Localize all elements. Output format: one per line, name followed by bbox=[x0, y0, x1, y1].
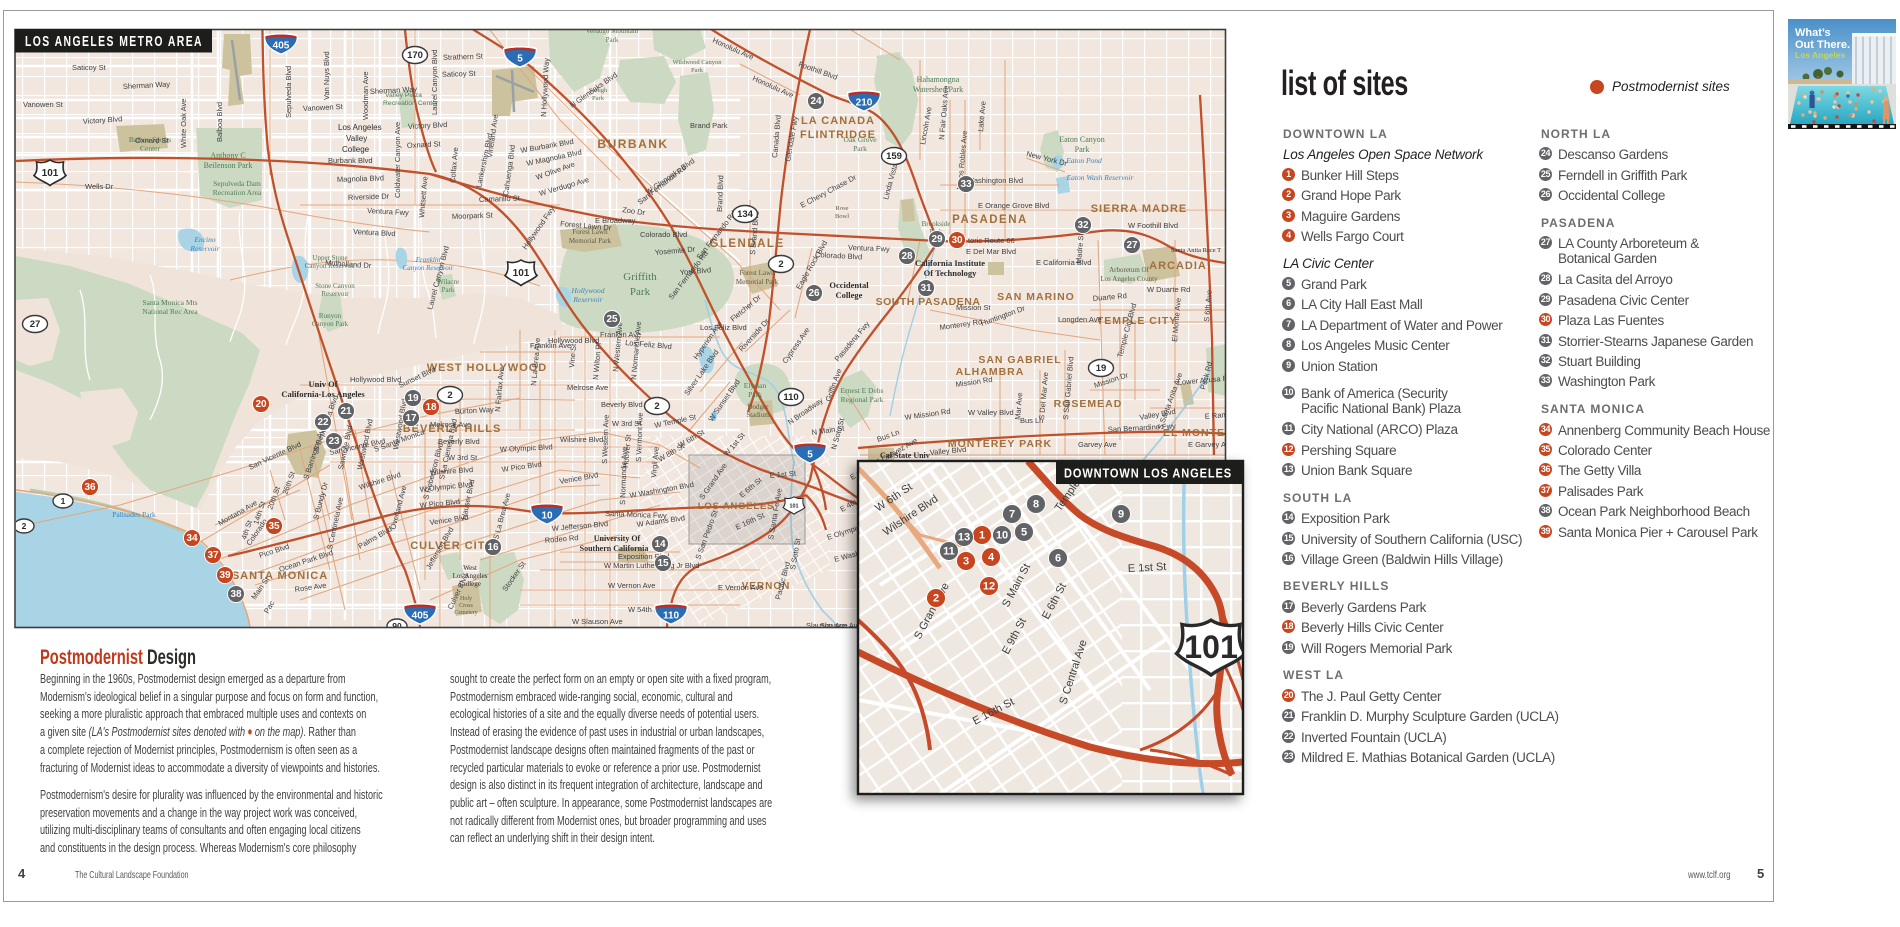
svg-text:Santa Monica Mts: Santa Monica Mts bbox=[143, 298, 198, 307]
svg-text:16: 16 bbox=[487, 542, 499, 553]
svg-text:Los Angeles: Los Angeles bbox=[1795, 50, 1845, 60]
svg-text:Coldwater Canyon Ave: Coldwater Canyon Ave bbox=[393, 122, 402, 198]
svg-text:101: 101 bbox=[1184, 629, 1238, 665]
svg-text:10: 10 bbox=[996, 529, 1008, 541]
svg-text:Wilshire Blvd: Wilshire Blvd bbox=[560, 435, 603, 444]
svg-text:28: 28 bbox=[901, 251, 913, 262]
svg-text:W Slauson Ave: W Slauson Ave bbox=[572, 617, 623, 626]
svg-text:29: 29 bbox=[931, 234, 943, 245]
svg-text:Valley Plaza: Valley Plaza bbox=[385, 92, 422, 99]
svg-text:LOS ANGELES METRO AREA: LOS ANGELES METRO AREA bbox=[25, 34, 203, 50]
svg-text:Sepulveda Blvd: Sepulveda Blvd bbox=[284, 66, 293, 118]
svg-text:Bowl: Bowl bbox=[835, 213, 849, 220]
svg-text:35: 35 bbox=[268, 521, 280, 532]
svg-text:2: 2 bbox=[447, 390, 452, 401]
svg-text:101: 101 bbox=[789, 503, 798, 509]
svg-text:Oxnard St: Oxnard St bbox=[407, 139, 442, 150]
svg-text:Beilenson Park: Beilenson Park bbox=[204, 161, 253, 170]
svg-text:Reservoir: Reservoir bbox=[189, 244, 219, 253]
svg-text:101: 101 bbox=[42, 168, 59, 179]
svg-text:Saticoy St: Saticoy St bbox=[442, 69, 477, 79]
svg-text:Griffith: Griffith bbox=[623, 271, 657, 283]
svg-text:Verdugo Mountain: Verdugo Mountain bbox=[586, 27, 639, 35]
svg-text:14: 14 bbox=[654, 539, 666, 550]
svg-text:13: 13 bbox=[958, 531, 970, 543]
svg-text:101: 101 bbox=[513, 268, 530, 279]
svg-text:Park: Park bbox=[592, 95, 605, 102]
svg-text:Memorial Park: Memorial Park bbox=[736, 278, 779, 286]
svg-text:Reservoir: Reservoir bbox=[572, 295, 602, 304]
svg-text:Melrose Ave: Melrose Ave bbox=[567, 383, 608, 392]
svg-text:E Ramo: E Ramo bbox=[1204, 410, 1232, 421]
svg-text:Arboretum Of: Arboretum Of bbox=[1109, 266, 1150, 274]
svg-text:Center: Center bbox=[140, 144, 160, 153]
svg-text:E 1st St: E 1st St bbox=[1128, 561, 1167, 575]
svg-text:Forest Lawn: Forest Lawn bbox=[739, 269, 775, 277]
svg-text:Los Feliz Blvd: Los Feliz Blvd bbox=[700, 323, 747, 332]
svg-text:Palisades Park: Palisades Park bbox=[112, 510, 156, 519]
svg-text:10: 10 bbox=[541, 511, 553, 522]
svg-text:405: 405 bbox=[273, 41, 290, 52]
svg-text:Eaton Pond: Eaton Pond bbox=[1065, 156, 1102, 165]
svg-text:Memorial Park: Memorial Park bbox=[569, 237, 612, 245]
svg-text:Cross: Cross bbox=[459, 603, 473, 609]
svg-text:1: 1 bbox=[61, 496, 66, 506]
svg-text:E Vernon Ave: E Vernon Ave bbox=[718, 583, 763, 592]
svg-text:Wildwood Canyon: Wildwood Canyon bbox=[672, 59, 722, 66]
svg-text:Strathern St: Strathern St bbox=[443, 52, 484, 62]
svg-text:24: 24 bbox=[810, 96, 822, 107]
svg-text:1: 1 bbox=[979, 529, 985, 541]
svg-text:E Garvey Ave: E Garvey Ave bbox=[1188, 440, 1234, 449]
svg-text:2: 2 bbox=[22, 521, 27, 531]
svg-text:3: 3 bbox=[963, 555, 969, 567]
svg-text:33: 33 bbox=[960, 179, 972, 190]
svg-text:W Valley Blvd: W Valley Blvd bbox=[968, 408, 1014, 417]
svg-text:Hollywood: Hollywood bbox=[571, 286, 605, 295]
svg-text:Laurel Canyon Blvd: Laurel Canyon Blvd bbox=[430, 50, 439, 115]
svg-text:W 3rd St: W 3rd St bbox=[612, 419, 642, 428]
svg-text:Los Angeles County: Los Angeles County bbox=[1100, 275, 1158, 283]
svg-text:11: 11 bbox=[943, 545, 955, 557]
svg-text:Ernest E Debs: Ernest E Debs bbox=[841, 386, 884, 395]
svg-text:E Orange Grove Blvd: E Orange Grove Blvd bbox=[978, 201, 1049, 210]
svg-text:CULVER CITY: CULVER CITY bbox=[410, 540, 494, 552]
svg-text:Mission St: Mission St bbox=[956, 303, 992, 312]
svg-text:Beverly Blvd: Beverly Blvd bbox=[601, 400, 643, 409]
svg-text:E Broadway: E Broadway bbox=[595, 216, 636, 225]
svg-text:Valley: Valley bbox=[346, 134, 367, 143]
svg-text:405: 405 bbox=[412, 611, 429, 622]
svg-text:DOWNTOWN LOS ANGELES: DOWNTOWN LOS ANGELES bbox=[1064, 467, 1232, 481]
svg-text:20: 20 bbox=[255, 399, 267, 410]
svg-text:SIERRA MADRE: SIERRA MADRE bbox=[1091, 203, 1188, 215]
svg-text:27: 27 bbox=[1126, 240, 1138, 251]
svg-text:Oxnard St: Oxnard St bbox=[135, 136, 170, 145]
svg-text:College: College bbox=[342, 145, 370, 154]
svg-text:Park: Park bbox=[853, 144, 867, 153]
svg-text:Rose: Rose bbox=[836, 205, 849, 212]
svg-text:19: 19 bbox=[407, 393, 419, 404]
svg-text:University Of: University Of bbox=[594, 534, 641, 543]
svg-text:Hollywood Blvd: Hollywood Blvd bbox=[548, 336, 599, 345]
svg-text:Woodman Ave: Woodman Ave bbox=[361, 71, 370, 120]
svg-text:7: 7 bbox=[1009, 508, 1015, 520]
svg-text:W Foothill Blvd: W Foothill Blvd bbox=[1128, 221, 1178, 230]
svg-text:25: 25 bbox=[606, 314, 618, 325]
svg-text:18: 18 bbox=[425, 402, 437, 413]
svg-text:Of Technology: Of Technology bbox=[924, 268, 977, 278]
svg-text:5: 5 bbox=[517, 54, 523, 65]
svg-text:17: 17 bbox=[405, 413, 417, 424]
svg-text:34: 34 bbox=[186, 533, 198, 544]
svg-text:LOS ANGELES: LOS ANGELES bbox=[698, 501, 775, 512]
svg-text:Colorado Blvd: Colorado Blvd bbox=[640, 230, 687, 239]
svg-text:159: 159 bbox=[886, 151, 902, 162]
svg-text:Occidental: Occidental bbox=[829, 280, 869, 290]
svg-text:Holy: Holy bbox=[460, 596, 472, 602]
svg-text:Longden Ave: Longden Ave bbox=[1058, 315, 1102, 324]
svg-text:30: 30 bbox=[951, 235, 963, 246]
svg-text:Oak Grove: Oak Grove bbox=[843, 135, 877, 144]
svg-text:Franklin Ave: Franklin Ave bbox=[600, 330, 641, 339]
svg-text:BURBANK: BURBANK bbox=[597, 137, 668, 151]
svg-text:Camarillo St: Camarillo St bbox=[479, 194, 521, 204]
svg-text:2: 2 bbox=[778, 259, 783, 270]
svg-text:Hahamongna: Hahamongna bbox=[917, 75, 960, 84]
svg-text:Brookside: Brookside bbox=[922, 220, 951, 228]
svg-text:LA CANADA: LA CANADA bbox=[801, 115, 875, 127]
svg-text:White Oak Ave: White Oak Ave bbox=[179, 99, 188, 148]
svg-text:5: 5 bbox=[1021, 526, 1027, 538]
svg-text:Park: Park bbox=[442, 286, 455, 294]
svg-text:9: 9 bbox=[1118, 508, 1124, 520]
svg-text:Watershed Park: Watershed Park bbox=[913, 85, 963, 94]
svg-text:26: 26 bbox=[808, 288, 820, 299]
svg-text:National Rec Area: National Rec Area bbox=[142, 307, 198, 316]
svg-text:210: 210 bbox=[856, 98, 873, 109]
svg-text:W Duarte Rd: W Duarte Rd bbox=[1147, 285, 1190, 294]
svg-text:2: 2 bbox=[654, 401, 659, 412]
svg-text:What’s: What’s bbox=[1795, 27, 1831, 39]
svg-text:110: 110 bbox=[663, 611, 680, 622]
svg-text:Recreation Area: Recreation Area bbox=[213, 188, 262, 197]
svg-text:Park: Park bbox=[1075, 145, 1090, 154]
svg-text:Park: Park bbox=[606, 36, 619, 44]
svg-text:22: 22 bbox=[317, 417, 329, 428]
svg-text:E Del Mar Blvd: E Del Mar Blvd bbox=[966, 247, 1016, 256]
svg-text:Riverside Dr: Riverside Dr bbox=[348, 192, 390, 202]
svg-text:Univ Of: Univ Of bbox=[308, 379, 337, 389]
svg-text:Santa Anita Race T: Santa Anita Race T bbox=[1171, 247, 1221, 254]
svg-text:SAN MARINO: SAN MARINO bbox=[997, 291, 1075, 303]
svg-text:8: 8 bbox=[1033, 498, 1039, 510]
svg-text:21: 21 bbox=[340, 406, 352, 417]
svg-text:134: 134 bbox=[737, 209, 754, 220]
svg-text:5: 5 bbox=[807, 450, 813, 461]
svg-text:W Martin Luther King Jr Blvd: W Martin Luther King Jr Blvd bbox=[604, 561, 699, 570]
svg-text:ARCADIA: ARCADIA bbox=[1149, 260, 1207, 272]
svg-text:Park: Park bbox=[748, 390, 762, 399]
svg-text:Beverly Blvd: Beverly Blvd bbox=[438, 437, 480, 446]
svg-text:WEST HOLLYWOOD: WEST HOLLYWOOD bbox=[427, 362, 548, 374]
svg-text:6: 6 bbox=[1055, 552, 1061, 564]
svg-text:toric Route 66: toric Route 66 bbox=[968, 236, 1015, 245]
svg-text:Eaton Canyon: Eaton Canyon bbox=[1059, 135, 1105, 144]
svg-text:Hollywood Blvd: Hollywood Blvd bbox=[350, 375, 401, 384]
svg-text:Brand Park: Brand Park bbox=[690, 121, 728, 130]
svg-text:Vanowen St: Vanowen St bbox=[23, 100, 64, 109]
svg-text:Elysian: Elysian bbox=[744, 381, 767, 390]
svg-text:Regional Park: Regional Park bbox=[841, 395, 884, 404]
svg-text:2: 2 bbox=[933, 592, 939, 604]
svg-text:Canyon Park: Canyon Park bbox=[312, 320, 349, 328]
svg-text:170: 170 bbox=[407, 50, 423, 61]
svg-text:Brand Blvd: Brand Blvd bbox=[715, 175, 725, 212]
svg-text:36: 36 bbox=[84, 482, 96, 493]
svg-text:Melrose Ave: Melrose Ave bbox=[430, 420, 471, 429]
svg-text:Moorpark St: Moorpark St bbox=[452, 211, 494, 221]
svg-text:Burbank Blvd: Burbank Blvd bbox=[328, 156, 373, 165]
svg-text:Eaton Wash Reservoir: Eaton Wash Reservoir bbox=[1066, 173, 1134, 182]
svg-text:Stadium: Stadium bbox=[746, 411, 770, 419]
svg-text:PASADENA: PASADENA bbox=[952, 214, 1028, 226]
svg-text:TEMPLE CITY: TEMPLE CITY bbox=[1097, 315, 1177, 327]
svg-text:Garvey Ave: Garvey Ave bbox=[1078, 440, 1117, 449]
svg-text:90: 90 bbox=[392, 621, 402, 631]
svg-text:California-Los Angeles: California-Los Angeles bbox=[281, 389, 365, 399]
svg-text:Dodger: Dodger bbox=[748, 403, 770, 411]
svg-text:GLENDALE: GLENDALE bbox=[709, 238, 784, 250]
svg-text:Balboa Blvd: Balboa Blvd bbox=[215, 102, 224, 142]
svg-text:38: 38 bbox=[230, 589, 242, 600]
svg-text:Van Nuys Blvd: Van Nuys Blvd bbox=[322, 51, 331, 100]
svg-text:15: 15 bbox=[657, 558, 669, 569]
svg-text:Anthony C: Anthony C bbox=[210, 151, 245, 160]
svg-text:College: College bbox=[836, 290, 863, 300]
svg-text:Los Angeles: Los Angeles bbox=[338, 123, 382, 132]
svg-text:19: 19 bbox=[1096, 363, 1107, 374]
svg-text:27: 27 bbox=[30, 319, 41, 330]
svg-text:Wells Dr: Wells Dr bbox=[85, 182, 114, 191]
svg-text:Magnolia Blvd: Magnolia Blvd bbox=[337, 173, 384, 184]
svg-text:32: 32 bbox=[1077, 220, 1089, 231]
svg-text:23: 23 bbox=[328, 436, 340, 447]
svg-text:Sepulveda Dam: Sepulveda Dam bbox=[213, 179, 261, 188]
svg-text:W 3rd St: W 3rd St bbox=[448, 453, 478, 462]
svg-text:Bus Ln: Bus Ln bbox=[1020, 416, 1043, 425]
svg-text:W Vernon Ave: W Vernon Ave bbox=[608, 581, 655, 590]
svg-text:31: 31 bbox=[920, 283, 932, 294]
svg-text:Encino: Encino bbox=[193, 235, 215, 244]
svg-text:Cemetery: Cemetery bbox=[454, 610, 477, 616]
svg-text:4: 4 bbox=[988, 551, 995, 563]
svg-text:110: 110 bbox=[783, 392, 798, 403]
svg-text:37: 37 bbox=[207, 550, 219, 561]
svg-text:Runyon: Runyon bbox=[319, 312, 342, 320]
svg-text:West: West bbox=[463, 564, 477, 572]
svg-text:E California Blvd: E California Blvd bbox=[1036, 258, 1091, 267]
svg-text:Park: Park bbox=[630, 286, 651, 298]
svg-text:Saticoy St: Saticoy St bbox=[72, 63, 107, 72]
svg-text:39: 39 bbox=[219, 570, 231, 581]
svg-text:SAN GABRIEL: SAN GABRIEL bbox=[978, 354, 1061, 366]
svg-text:Reservoir: Reservoir bbox=[321, 290, 349, 298]
svg-text:Stone Canyon: Stone Canyon bbox=[315, 282, 355, 290]
svg-text:Park: Park bbox=[691, 67, 704, 74]
svg-text:12: 12 bbox=[983, 580, 995, 592]
svg-text:California Institute: California Institute bbox=[915, 258, 985, 268]
